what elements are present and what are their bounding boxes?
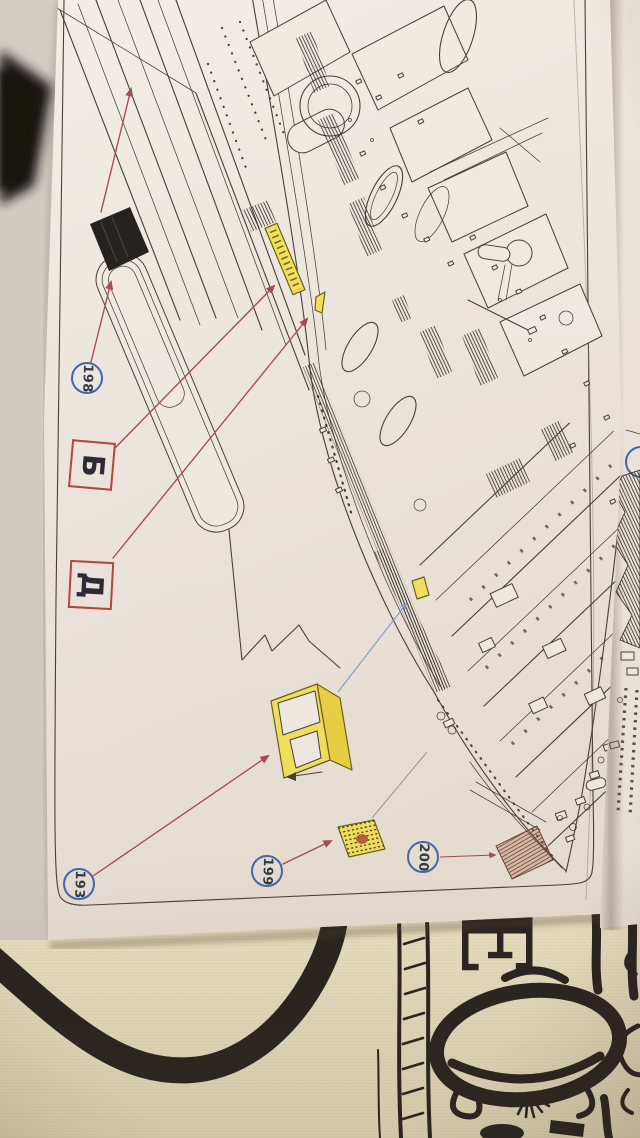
photo-of-instruction-sheet: Е [0,0,640,1138]
callout-200-label: 200 [415,843,431,872]
callout-letter-b-label: Б [74,452,111,478]
callout-198-label: 198 [79,364,95,393]
callout-letter-b: Б [68,439,116,491]
callout-193: 193 [63,868,95,900]
callout-193-label: 193 [71,870,87,899]
callout-letter-d-label: Д [73,571,109,600]
callout-198: 198 [71,362,103,394]
callout-200: 200 [407,841,439,873]
callout-199-label: 199 [259,857,275,886]
callout-199: 199 [251,855,283,887]
callout-letter-d: Д [68,560,114,610]
